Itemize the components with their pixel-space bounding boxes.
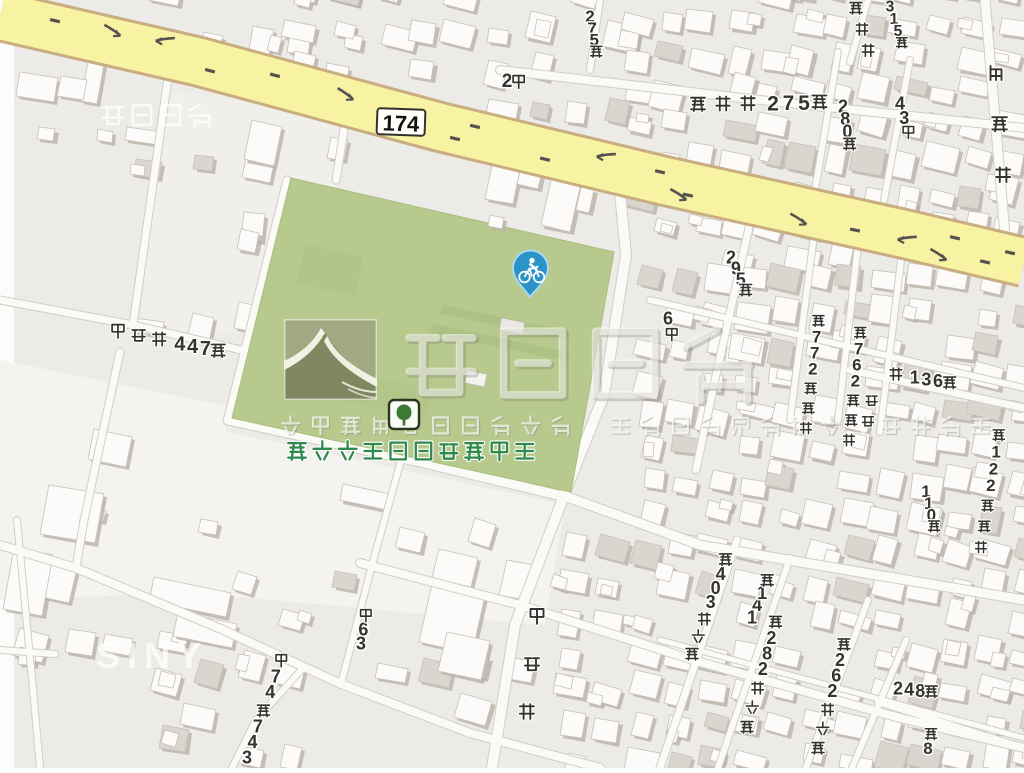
svg-text:2: 2	[835, 650, 845, 670]
svg-text:2: 2	[986, 476, 995, 495]
svg-text:2: 2	[893, 679, 903, 699]
svg-text:3: 3	[921, 369, 931, 389]
svg-text:8: 8	[923, 739, 932, 758]
svg-text:7: 7	[200, 338, 211, 360]
svg-text:7: 7	[253, 717, 263, 737]
svg-text:5: 5	[798, 92, 810, 115]
svg-text:8: 8	[915, 681, 925, 701]
svg-text:4: 4	[904, 680, 914, 700]
svg-text:2: 2	[989, 459, 998, 478]
svg-text:SINY: SINY	[96, 635, 208, 676]
svg-text:7: 7	[854, 340, 863, 359]
svg-text:1: 1	[910, 368, 920, 388]
svg-text:7: 7	[812, 328, 821, 347]
svg-text:2: 2	[767, 92, 779, 115]
svg-text:4: 4	[187, 336, 199, 358]
svg-text:2: 2	[502, 71, 513, 92]
svg-text:2: 2	[766, 628, 776, 648]
svg-text:6: 6	[663, 309, 673, 329]
svg-text:7: 7	[783, 92, 795, 115]
svg-text:6: 6	[933, 371, 943, 391]
svg-text:1: 1	[991, 443, 1000, 462]
svg-text:174: 174	[382, 110, 420, 136]
svg-text:7: 7	[271, 666, 281, 686]
svg-text:4: 4	[174, 333, 186, 355]
